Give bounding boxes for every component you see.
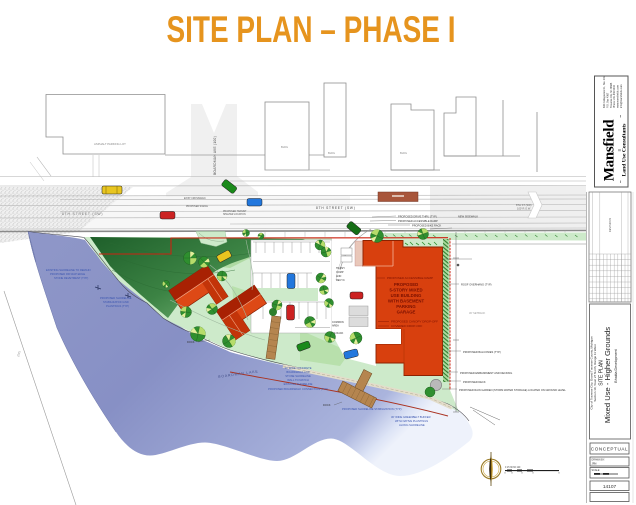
svg-text:PROPOSED DRIVE THRU (TYP): PROPOSED DRIVE THRU (TYP) — [398, 215, 437, 219]
svg-text:PROPOSED BIKE RACK: PROPOSED BIKE RACK — [412, 224, 442, 228]
svg-text:BLDG: BLDG — [328, 151, 335, 155]
svg-text:ALONG SHORELINE: ALONG SHORELINE — [399, 423, 425, 427]
svg-text:SITE PLAN – PHASE I: SITE PLAN – PHASE I — [167, 9, 456, 50]
svg-text:30' WIDE GREENBELT BUFFER: 30' WIDE GREENBELT BUFFER — [391, 415, 431, 419]
svg-text:COVERED DROP-OFF: COVERED DROP-OFF — [391, 324, 423, 328]
svg-text:info@mansfieldlu.com: info@mansfieldlu.com — [620, 84, 623, 108]
svg-text:AND: AND — [336, 275, 341, 278]
svg-text:DOCK: DOCK — [187, 340, 195, 344]
svg-text:PROPOSED BOARDWALK CONNECTION: PROPOSED BOARDWALK CONNECTION (TYP) — [268, 387, 328, 391]
svg-text:30' WIDE CONCRETE: 30' WIDE CONCRETE — [284, 366, 311, 370]
svg-text:0 15 30 60 120: 0 15 30 60 120 — [505, 467, 521, 469]
svg-text:100' R.O.W.: 100' R.O.W. — [517, 207, 531, 211]
svg-text:14107: 14107 — [603, 484, 617, 490]
svg-text:☰: ☰ — [618, 149, 622, 152]
svg-text:8TH STREET (SW): 8TH STREET (SW) — [316, 206, 356, 210]
svg-text:PROPOSED TRANSIT: PROPOSED TRANSIT — [223, 210, 247, 213]
svg-text:SITE PLAN: SITE PLAN — [599, 360, 605, 386]
svg-text:EXISTING SHORELINE: EXISTING SHORELINE — [284, 382, 313, 386]
svg-text:Mansfield: Mansfield — [602, 119, 618, 181]
svg-text:CONCEPTUAL: CONCEPTUAL — [591, 447, 628, 452]
svg-text:PLANTINGS (TYP): PLANTINGS (TYP) — [106, 304, 129, 308]
svg-text:PROPOSED RAIN GARDEN (STORM WA: PROPOSED RAIN GARDEN (STORM WATER STORAG… — [459, 388, 566, 392]
svg-text:SHELTER LOCATION: SHELTER LOCATION — [223, 213, 246, 216]
svg-text:EXISTING SHORELINE TO REMAIN: EXISTING SHORELINE TO REMAIN — [46, 268, 90, 272]
svg-text:Bhakta Development: Bhakta Development — [614, 349, 618, 382]
svg-text:PROPOSED SIGNAL: PROPOSED SIGNAL — [186, 205, 209, 208]
svg-text:TRASH: TRASH — [336, 267, 345, 270]
svg-text:Land Use Consultants: Land Use Consultants — [622, 123, 628, 177]
svg-text:BOARDMAN AVE (100): BOARDMAN AVE (100) — [213, 136, 217, 175]
svg-text:PROPOSED SHORELINE: PROPOSED SHORELINE — [100, 296, 132, 300]
svg-text:PROPOSED SHORELINE STABILIZATI: PROPOSED SHORELINE STABILIZATION (TYP) — [342, 407, 402, 411]
svg-text:5-STORY MIXED: 5-STORY MIXED — [389, 288, 422, 293]
svg-text:STABILIZATION AND: STABILIZATION AND — [103, 300, 129, 304]
svg-text:Section 10, Town 27 North, Ran: Section 10, Town 27 North, Range 11 West — [593, 344, 597, 401]
svg-text:NEW SIDEWALK: NEW SIDEWALK — [458, 215, 478, 219]
svg-text:8TH STREET (SW): 8TH STREET (SW) — [62, 212, 103, 216]
svg-text:AREA: AREA — [332, 325, 339, 328]
svg-text:PROPOSED: PROPOSED — [394, 282, 418, 287]
svg-text:PROPOSED ACCESSIBLE RAMP: PROPOSED ACCESSIBLE RAMP — [387, 276, 433, 280]
svg-text:PROPOSED DECK: PROPOSED DECK — [463, 380, 486, 384]
svg-text:PROPOSED EMBANKMENT AND DECKIN: PROPOSED EMBANKMENT AND DECKING — [460, 371, 512, 375]
svg-text:SCALE:: SCALE: — [592, 469, 601, 472]
svg-text:GARAGE: GARAGE — [397, 310, 416, 315]
svg-text:RECYC: RECYC — [336, 279, 345, 282]
svg-text:ROOF OVERHANG (TYP): ROOF OVERHANG (TYP) — [461, 283, 492, 287]
svg-text:DOCK: DOCK — [323, 403, 331, 407]
svg-text:8TH ST (SW): 8TH ST (SW) — [516, 203, 532, 207]
svg-text:30' SETBACK: 30' SETBACK — [469, 311, 485, 315]
svg-text:PROPOSED RIP-RAP EDGE: PROPOSED RIP-RAP EDGE — [50, 272, 85, 276]
svg-text:PROPOSED BALCONIES (TYP): PROPOSED BALCONIES (TYP) — [463, 350, 501, 354]
svg-text:BOARDWALK AND: BOARDWALK AND — [286, 370, 309, 374]
svg-text:COMP: COMP — [336, 271, 344, 274]
svg-text:WITH BASEMENT: WITH BASEMENT — [388, 299, 425, 304]
svg-text:ASPHALT PARKING LOT: ASPHALT PARKING LOT — [94, 142, 126, 146]
svg-text:WITH NATIVE PLANTINGS: WITH NATIVE PLANTINGS — [395, 419, 428, 423]
svg-text:JRM: JRM — [592, 463, 597, 466]
svg-text:USE BUILDING: USE BUILDING — [391, 293, 422, 298]
svg-text:PARKING: PARKING — [396, 304, 416, 309]
svg-text:STONE REVETMENT (TYP): STONE REVETMENT (TYP) — [54, 276, 88, 280]
svg-text:BLDG: BLDG — [281, 145, 288, 149]
svg-text:PROPOSED CANOPY DROP-OFF: PROPOSED CANOPY DROP-OFF — [391, 320, 438, 324]
svg-text:BLDG: BLDG — [400, 151, 407, 155]
svg-text:DRAWN BY:: DRAWN BY: — [592, 459, 606, 462]
svg-text:REVISIONS: REVISIONS — [608, 218, 612, 232]
svg-text:City of Traverse City, Grand T: City of Traverse City, Grand Traverse Co… — [589, 336, 593, 409]
svg-text:EXIST CROSSWALK: EXIST CROSSWALK — [184, 197, 206, 200]
svg-text:STONE SHORELINE: STONE SHORELINE — [285, 374, 311, 378]
svg-text:WALL TO MATCH: WALL TO MATCH — [287, 378, 309, 382]
svg-text:PROPOSED ACCESSIBLE RAMP: PROPOSED ACCESSIBLE RAMP — [398, 219, 438, 223]
